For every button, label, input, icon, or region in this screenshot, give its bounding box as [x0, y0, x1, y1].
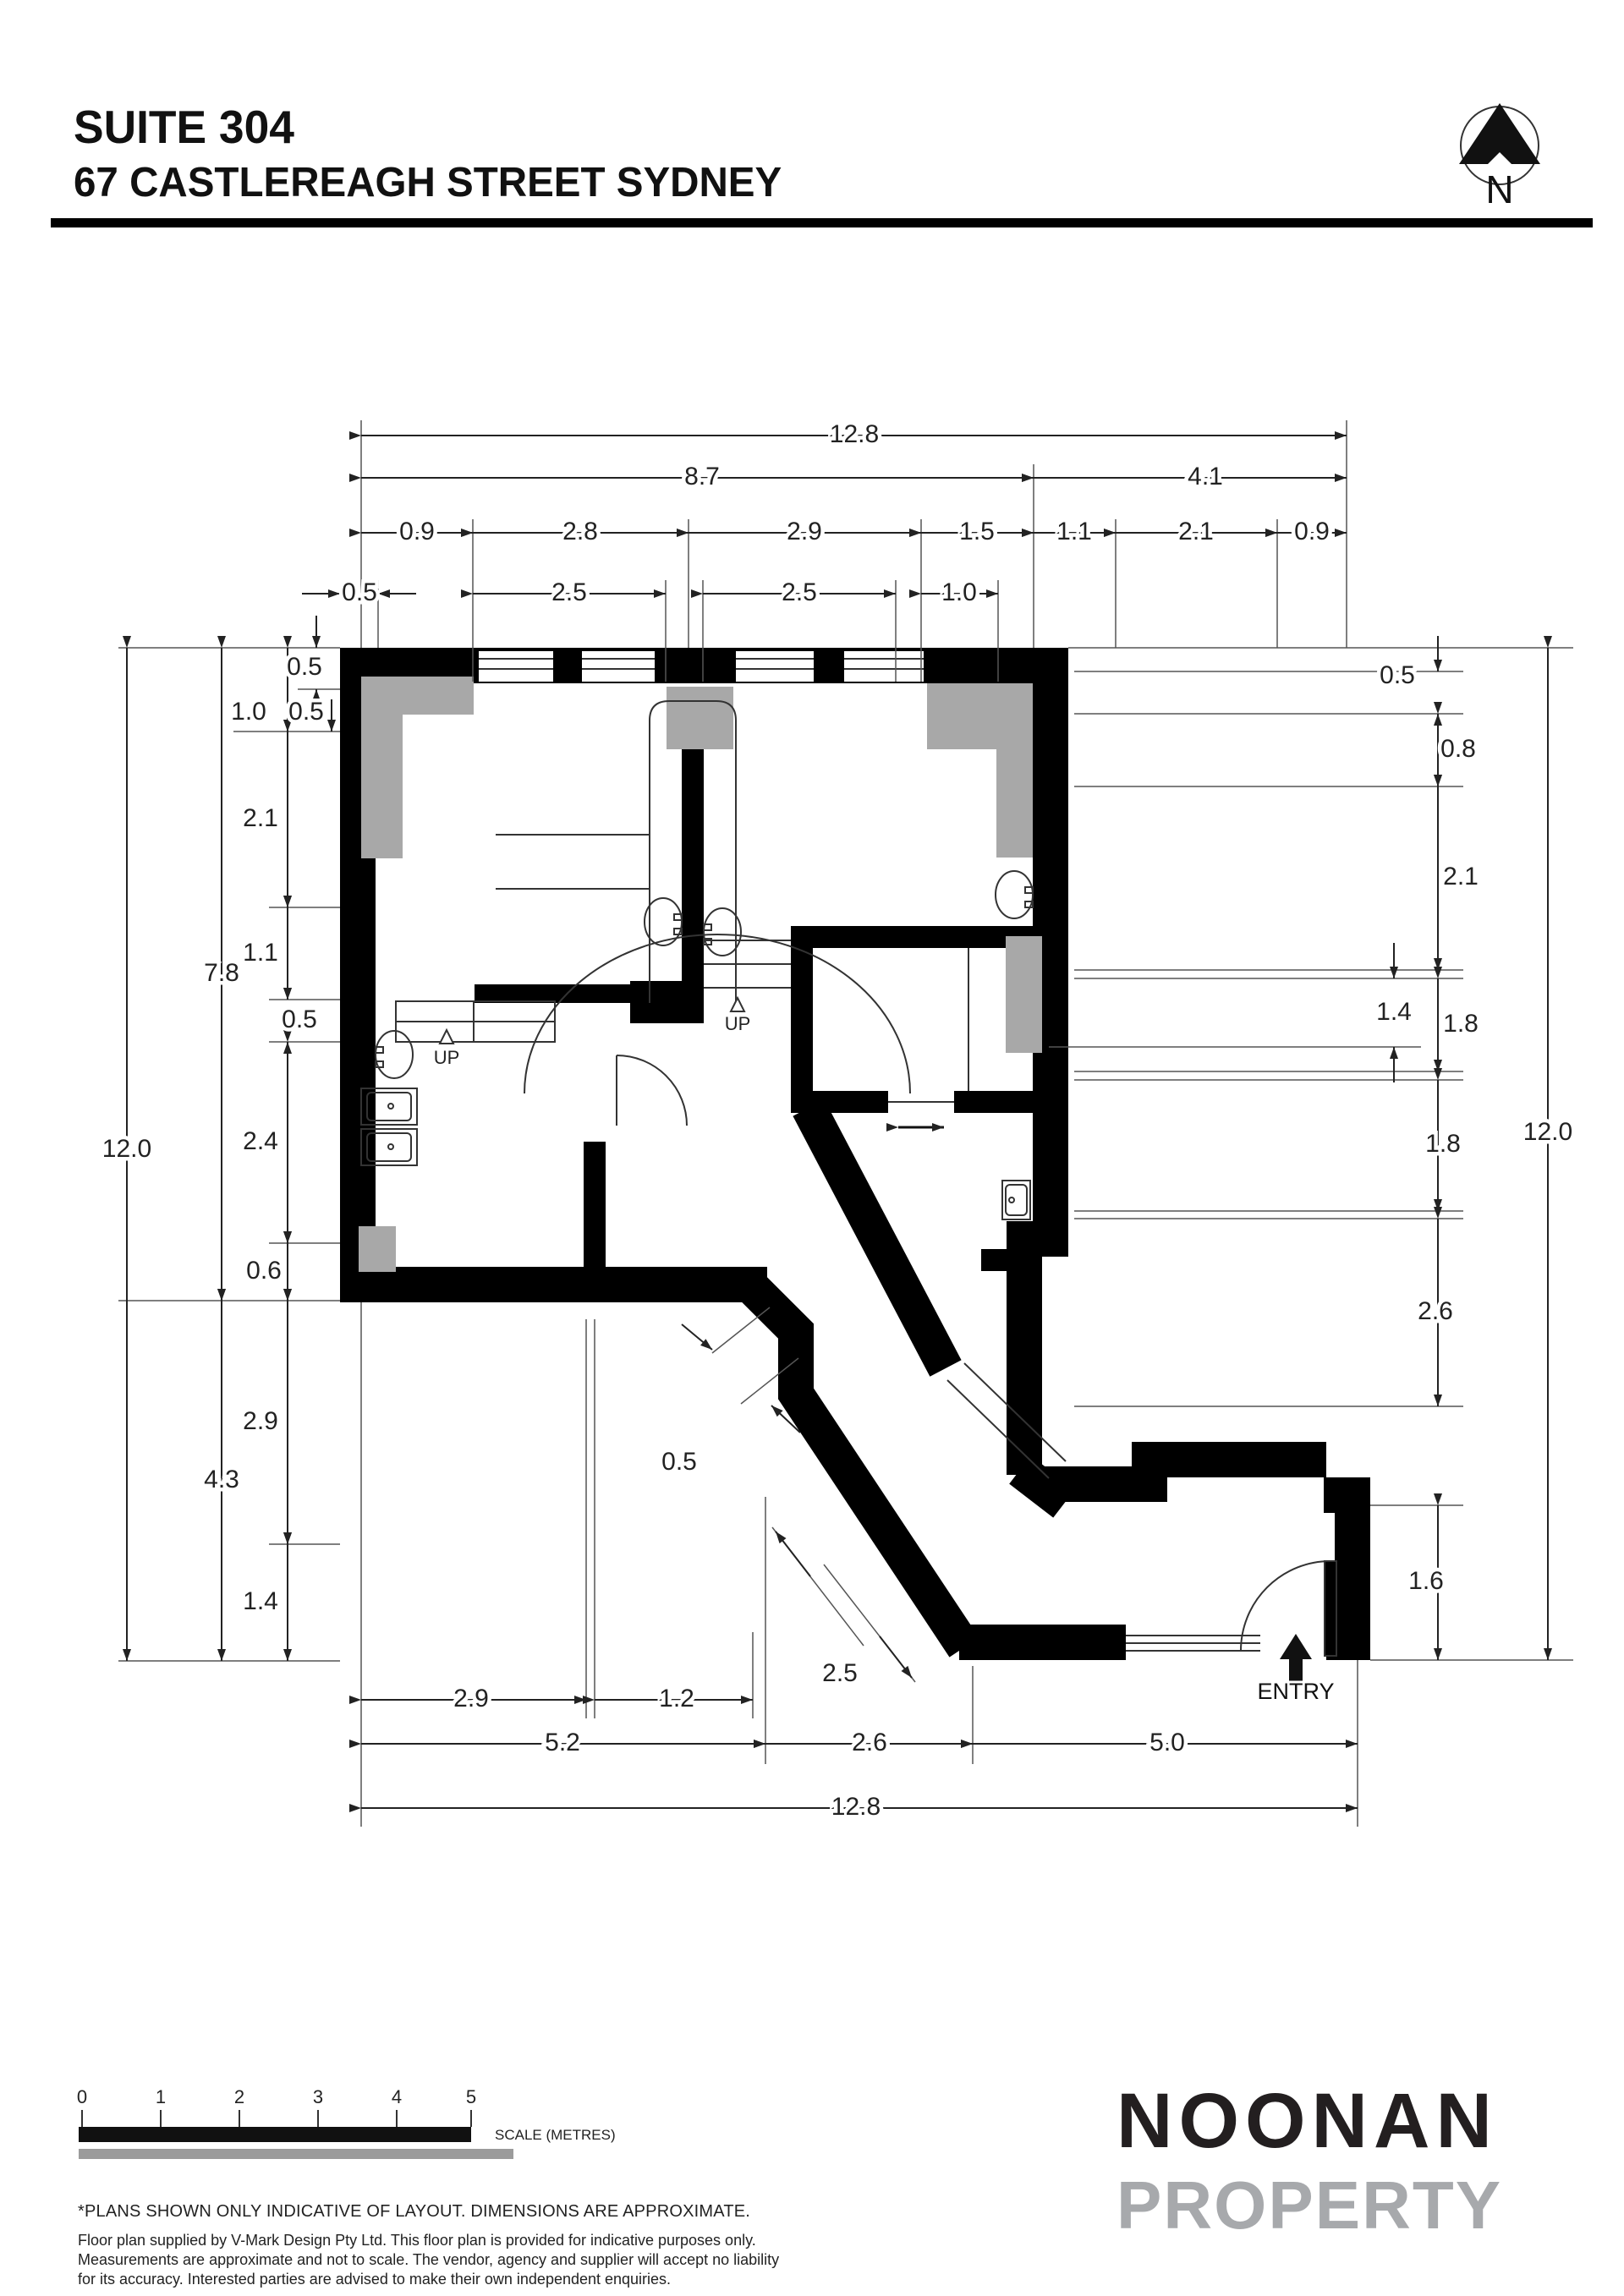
- dim-label: 0.9: [1294, 518, 1330, 545]
- dim-label: 1.0: [941, 578, 977, 606]
- basin-icons: [376, 871, 1033, 1078]
- scale-tick-label: 0: [77, 2086, 87, 2107]
- dim-label: 7.8: [204, 959, 239, 987]
- dim-label: 0.5: [1380, 661, 1415, 689]
- floor-plan: SCALE (METRES) N 12.88.74.10.92.82.91.51…: [0, 0, 1624, 2296]
- dim-label: 2.1: [1178, 518, 1214, 545]
- dim-label: 12.8: [830, 420, 879, 448]
- dim-label: 2.6: [1418, 1297, 1453, 1325]
- dim-label: 0.6: [246, 1257, 282, 1285]
- dim-label: 2.8: [562, 518, 598, 545]
- dim-label: 2.1: [1443, 863, 1479, 890]
- dim-label: 2.6: [852, 1729, 887, 1756]
- stairs-lower: [396, 1001, 555, 1044]
- compass-n-label: N: [1485, 167, 1513, 211]
- windows: [479, 651, 1326, 1660]
- exterior-walls: [340, 648, 1370, 1660]
- dim-label: 1.8: [1425, 1130, 1461, 1158]
- dim-label: 2.5: [782, 578, 817, 606]
- dim-label: 1.1: [1056, 518, 1092, 545]
- dim-label: 1.8: [1443, 1010, 1479, 1038]
- scale-tick-label: 3: [313, 2086, 323, 2107]
- up-label: UP: [725, 1013, 751, 1034]
- dim-label: 1.5: [959, 518, 995, 545]
- dim-label: 2.4: [243, 1127, 278, 1155]
- dim-label: 12.0: [102, 1135, 151, 1163]
- disclaimer: Floor plan supplied by V-Mark Design Pty…: [78, 2231, 779, 2289]
- dim-label: 0.5: [287, 653, 322, 681]
- dim-label: 2.5: [551, 578, 587, 606]
- dim-label: 2.9: [243, 1407, 278, 1435]
- disclaimer-line: for its accuracy. Interested parties are…: [78, 2270, 779, 2289]
- dim-label: 1.6: [1408, 1567, 1444, 1595]
- plan-note: *PLANS SHOWN ONLY INDICATIVE OF LAYOUT. …: [78, 2202, 750, 2222]
- dim-label: 1.2: [659, 1685, 694, 1712]
- dim-label: 1.0: [231, 698, 266, 726]
- entry-label: ENTRY: [1257, 1679, 1334, 1704]
- dim-label: 2.9: [453, 1685, 489, 1712]
- dim-label: 8.7: [684, 463, 720, 490]
- dim-label: 0.5: [661, 1448, 697, 1476]
- powder-basin-icon: [1002, 1181, 1030, 1219]
- scale-tick-label: 4: [392, 2086, 402, 2107]
- scale-bar-label: SCALE (METRES): [495, 2127, 616, 2143]
- dim-label: 0.5: [282, 1006, 317, 1033]
- logo-line2: PROPERTY: [1116, 2172, 1502, 2239]
- dim-label: 1.1: [243, 939, 278, 967]
- dim-label: 0.8: [1440, 735, 1476, 763]
- scale-bar-black: [79, 2127, 471, 2142]
- stairs-upper: [704, 940, 791, 1011]
- door-kitchen: [617, 1055, 687, 1126]
- dim-label: 0.5: [288, 698, 324, 726]
- hall-arch: [524, 934, 910, 1093]
- dim-label: 5.0: [1149, 1729, 1185, 1756]
- dim-label: 4.1: [1188, 463, 1223, 490]
- scale-bar: SCALE (METRES): [79, 2110, 616, 2159]
- scale-bar-gray: [79, 2149, 513, 2159]
- dim-label: 0.9: [399, 518, 435, 545]
- interior-walls: [475, 749, 1042, 1302]
- scale-tick-label: 2: [234, 2086, 244, 2107]
- dim-label: 4.3: [204, 1466, 239, 1493]
- scale-tick-label: 1: [156, 2086, 166, 2107]
- disclaimer-line: Floor plan supplied by V-Mark Design Pty…: [78, 2231, 779, 2250]
- dim-label: 0.5: [342, 578, 377, 606]
- agency-logo: NOONAN PROPERTY: [1116, 2082, 1502, 2239]
- scale-tick-label: 5: [466, 2086, 476, 2107]
- dim-label: 2.1: [243, 804, 278, 832]
- dim-label: 1.4: [1376, 998, 1412, 1026]
- up-label: UP: [434, 1047, 460, 1068]
- disclaimer-line: Measurements are approximate and not to …: [78, 2250, 779, 2270]
- dim-label: 12.0: [1523, 1118, 1572, 1146]
- dim-label: 2.9: [787, 518, 822, 545]
- floorplan-page: SUITE 304 67 CASTLEREAGH STREET SYDNEY: [0, 0, 1624, 2296]
- logo-line1: NOONAN: [1116, 2082, 1502, 2160]
- dim-label: 1.4: [243, 1587, 278, 1615]
- dim-label: 12.8: [831, 1793, 881, 1821]
- dim-label: 5.2: [545, 1729, 580, 1756]
- dim-label: 2.5: [822, 1659, 858, 1687]
